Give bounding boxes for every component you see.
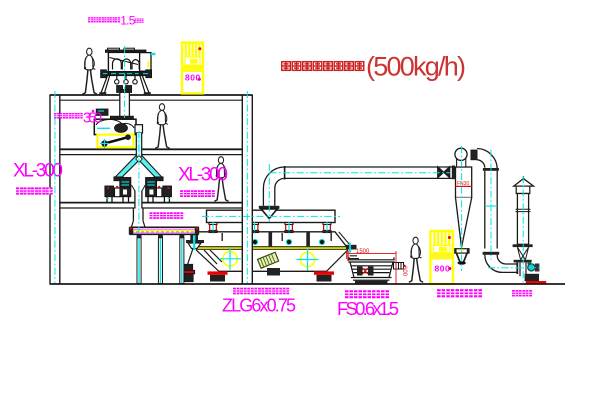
svg-text:XL-300: XL-300 — [13, 161, 63, 182]
svg-text:XL-300: XL-300 — [178, 165, 228, 186]
svg-text:350: 350 — [83, 111, 102, 127]
svg-text:ZLG6x0.75: ZLG6x0.75 — [222, 296, 296, 316]
svg-text:1.5: 1.5 — [120, 14, 135, 28]
svg-text:FS0.6x1.5: FS0.6x1.5 — [337, 298, 399, 319]
svg-text:(500kg/h): (500kg/h) — [366, 52, 466, 82]
svg-text:1500: 1500 — [356, 249, 370, 255]
svg-text:600: 600 — [401, 266, 407, 277]
svg-text:800: 800 — [185, 73, 201, 83]
svg-text:800: 800 — [435, 264, 451, 274]
svg-text:FN30: FN30 — [457, 181, 469, 187]
